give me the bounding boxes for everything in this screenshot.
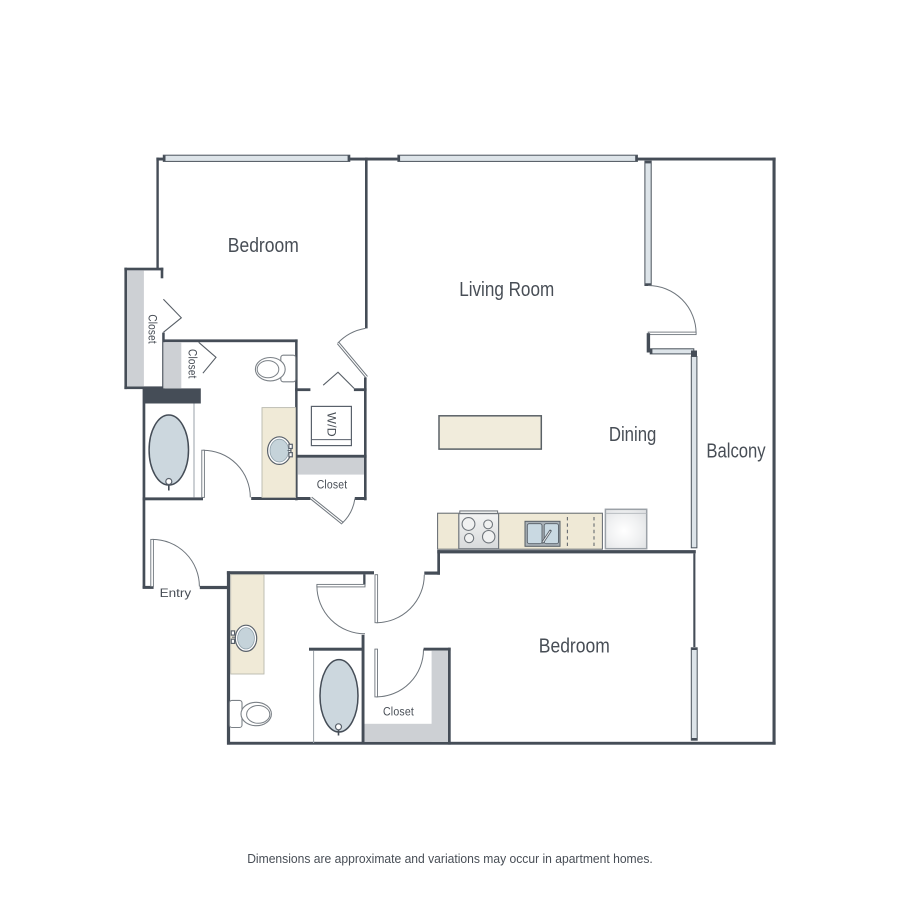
- svg-text:Entry: Entry: [160, 586, 192, 600]
- svg-text:Dining: Dining: [609, 424, 657, 446]
- svg-text:Bedroom: Bedroom: [539, 636, 610, 658]
- svg-text:Closet: Closet: [146, 314, 160, 344]
- svg-text:Dimensions are approximate and: Dimensions are approximate and variation…: [247, 851, 653, 866]
- svg-text:Living Room: Living Room: [459, 279, 554, 301]
- svg-text:Bedroom: Bedroom: [228, 235, 299, 257]
- svg-text:W/D: W/D: [324, 412, 338, 437]
- svg-text:Balcony: Balcony: [706, 441, 765, 463]
- svg-text:Closet: Closet: [186, 349, 200, 379]
- svg-text:Closet: Closet: [383, 704, 414, 718]
- svg-text:Closet: Closet: [317, 478, 348, 492]
